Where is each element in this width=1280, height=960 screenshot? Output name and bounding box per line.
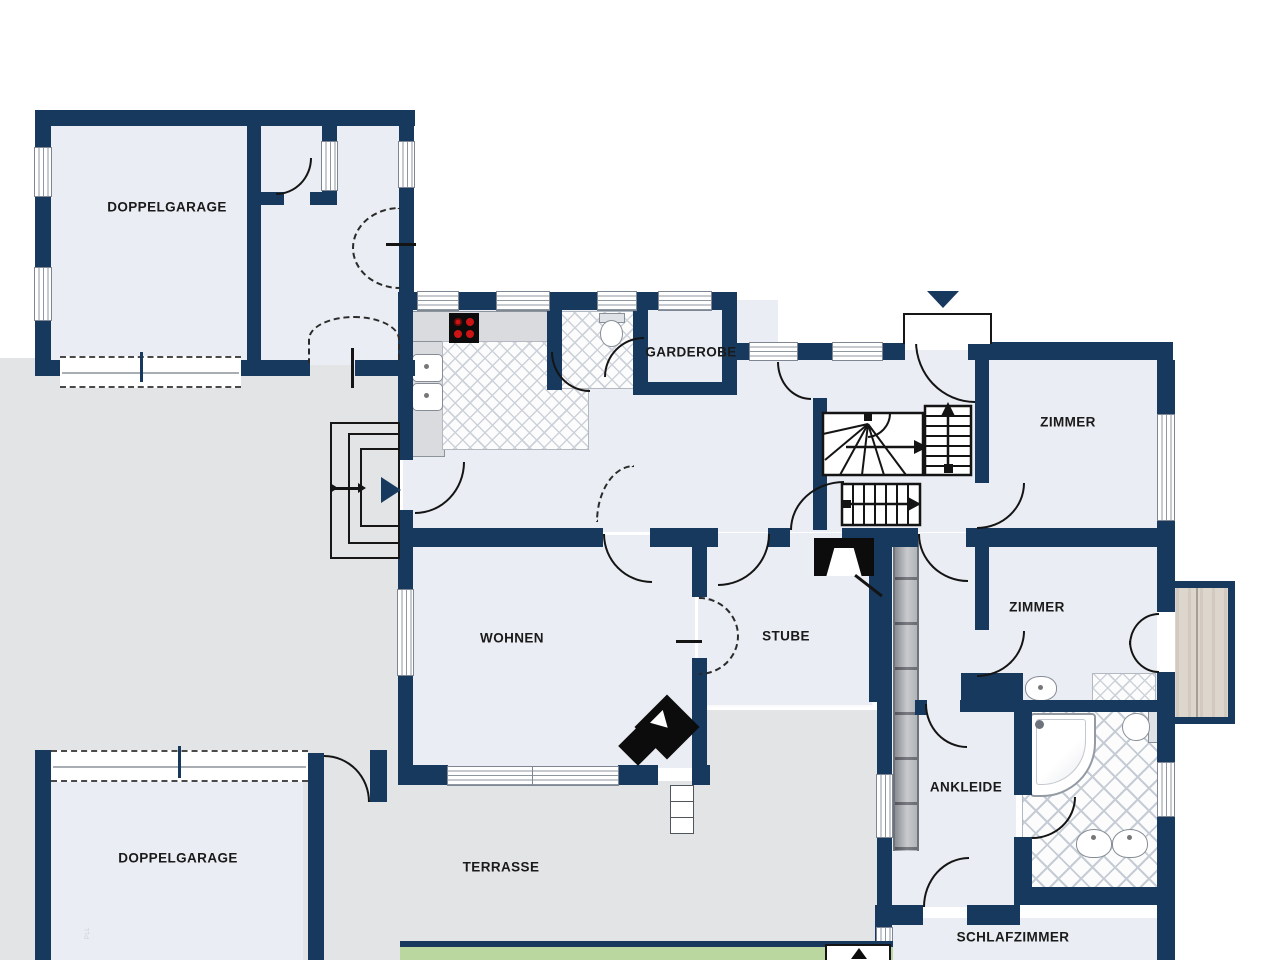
- wall: [692, 765, 710, 785]
- garage-door: [60, 356, 241, 388]
- wall: [35, 110, 415, 126]
- wall: [636, 292, 659, 310]
- room-label-zimmer-mid: ZIMMER: [1009, 600, 1065, 615]
- window: [1158, 415, 1174, 520]
- toilet-icon: [1122, 711, 1158, 742]
- wall: [737, 343, 750, 360]
- wall: [308, 753, 324, 960]
- room-label-wohnen: WOHNEN: [480, 631, 544, 646]
- room-label-stube: STUBE: [762, 629, 810, 644]
- wall: [399, 110, 414, 142]
- tile-patch: [1093, 674, 1155, 702]
- terrace-steps: [670, 817, 694, 834]
- room-label-garderobe: GARDEROBE: [645, 345, 736, 360]
- wall: [398, 675, 413, 767]
- window: [659, 292, 711, 310]
- wall: [875, 905, 923, 925]
- window: [750, 343, 797, 360]
- wall: [882, 343, 905, 360]
- washbasin-icon: [1025, 676, 1057, 701]
- door-tick: [351, 348, 354, 388]
- wall: [650, 528, 718, 547]
- wall: [722, 292, 737, 392]
- wall: [1014, 837, 1032, 887]
- wall: [398, 510, 413, 590]
- wall: [399, 187, 414, 242]
- room-label-schlafzimmer: SCHLAFZIMMER: [957, 930, 1070, 945]
- stove-icon: [449, 313, 479, 343]
- entry-arrow-head: [330, 483, 338, 493]
- wall: [398, 292, 418, 310]
- entrance-porch: [903, 313, 992, 344]
- wall: [633, 382, 737, 395]
- window: [833, 343, 882, 360]
- tiled-stove-icon: [814, 538, 874, 576]
- wall: [877, 837, 892, 905]
- wall: [692, 547, 707, 597]
- terrace-lawn: [400, 941, 893, 960]
- room-label-doppelgarage-bottom: DOPPELGARAGE: [118, 851, 238, 866]
- door-tick: [386, 243, 416, 246]
- terrace-steps: [670, 785, 694, 802]
- window: [398, 590, 413, 675]
- window: [598, 292, 636, 310]
- window: [322, 142, 337, 190]
- wall: [399, 242, 414, 292]
- room-floor: [45, 120, 255, 365]
- terrace-steps: [670, 801, 694, 818]
- wall: [960, 700, 1157, 712]
- wall: [768, 528, 790, 547]
- balcony-door-opening: [1157, 612, 1175, 672]
- door-tick: [676, 640, 702, 643]
- kitchen-sink-icon: [412, 354, 443, 382]
- wall: [398, 528, 603, 547]
- bath-sink-icon: [1076, 829, 1112, 858]
- wall: [458, 292, 497, 310]
- wall: [968, 342, 1173, 360]
- wall: [975, 545, 989, 630]
- wall: [370, 750, 387, 802]
- wall: [322, 110, 337, 142]
- door-arc-dashed: [308, 316, 400, 363]
- window: [877, 775, 892, 837]
- wall: [398, 765, 448, 785]
- garage-door-tick: [140, 352, 143, 382]
- window: [35, 148, 51, 196]
- wall: [967, 905, 1020, 925]
- wall: [1014, 887, 1157, 905]
- triangle-right-icon: [381, 477, 401, 503]
- wall: [35, 750, 51, 960]
- window: [497, 292, 549, 310]
- chevron-down-icon: [927, 291, 959, 308]
- toilet-icon: [599, 313, 623, 347]
- wall: [966, 528, 1173, 547]
- window: [399, 142, 414, 187]
- wall: [549, 292, 598, 310]
- wall: [240, 360, 310, 376]
- lawn-marker: [825, 944, 891, 960]
- wall: [797, 343, 833, 360]
- wall: [1157, 545, 1175, 960]
- wall: [247, 126, 261, 360]
- watermark: PLL: [85, 927, 91, 939]
- bath-sink-icon: [1112, 829, 1148, 858]
- wall: [877, 700, 892, 775]
- room-label-zimmer-top: ZIMMER: [1040, 415, 1096, 430]
- wall: [310, 192, 337, 205]
- wall: [1014, 712, 1032, 795]
- room-label-ankleide: ANKLEIDE: [930, 780, 1002, 795]
- window: [533, 767, 618, 785]
- wall: [618, 765, 658, 785]
- stairs-icon: [818, 398, 978, 530]
- window: [1158, 763, 1174, 816]
- window: [35, 268, 51, 320]
- floor-plan: DOPPELGARAGE GARDEROBE ZIMMER WOHNEN STU…: [0, 0, 1280, 960]
- wall: [398, 310, 413, 460]
- kitchen-sink-icon: [412, 383, 443, 411]
- wall: [35, 360, 60, 376]
- wardrobe-icon: [893, 535, 919, 851]
- room-label-doppelgarage-top: DOPPELGARAGE: [107, 200, 227, 215]
- window: [448, 767, 533, 785]
- wall: [961, 673, 1023, 702]
- entry-arrow-head: [358, 483, 366, 493]
- garage-door-tick: [178, 746, 181, 778]
- window: [418, 292, 458, 310]
- room-label-terrasse: TERRASSE: [463, 860, 540, 875]
